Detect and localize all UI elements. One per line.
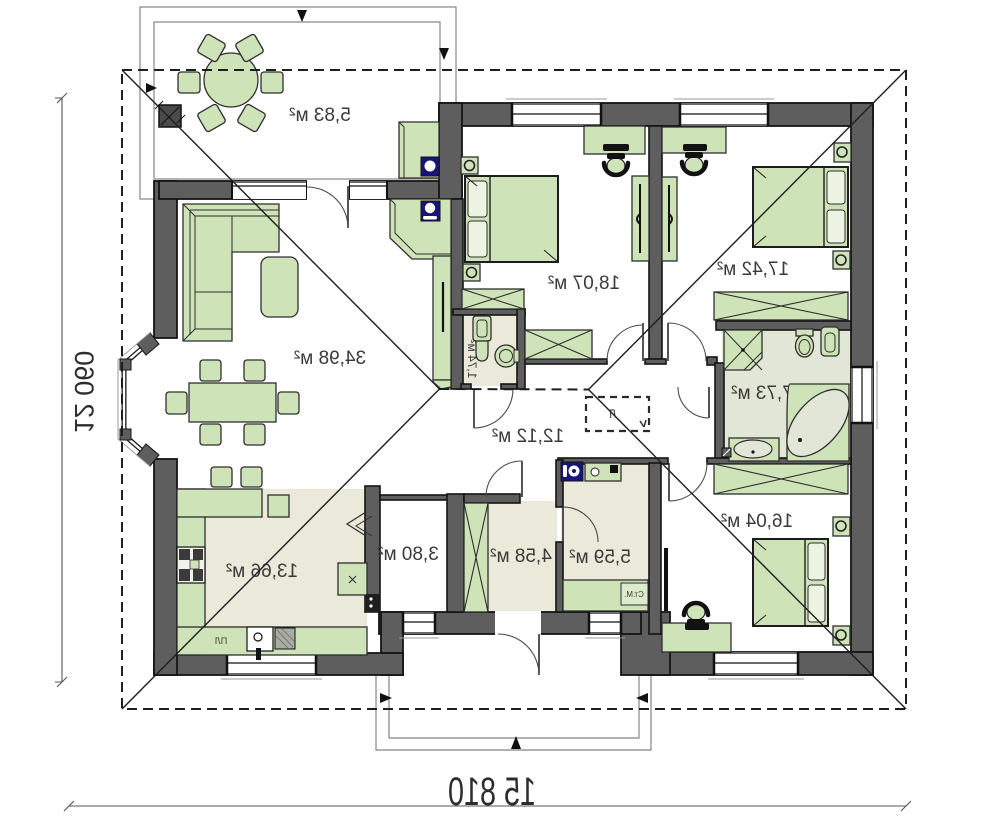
- svg-text:15 810: 15 810: [448, 769, 536, 814]
- svg-text:16,04 м²: 16,04 м²: [721, 511, 793, 532]
- svg-text:Ст.М.: Ст.М.: [624, 590, 644, 599]
- svg-text:12,12 м²: 12,12 м²: [492, 426, 564, 447]
- svg-text:3,80 м²: 3,80 м²: [377, 544, 439, 565]
- svg-text:5,59 м²: 5,59 м²: [569, 547, 631, 568]
- svg-text:7,73 м²: 7,73 м²: [731, 383, 793, 404]
- svg-text:34,98 м²: 34,98 м²: [294, 348, 366, 369]
- svg-text:4,58 м²: 4,58 м²: [490, 546, 552, 567]
- svg-text:5,83 м²: 5,83 м²: [289, 105, 351, 126]
- svg-text:ПЛ: ПЛ: [215, 636, 227, 646]
- svg-text:12 060: 12 060: [69, 351, 99, 434]
- svg-text:17,42 м²: 17,42 м²: [717, 259, 789, 280]
- svg-text:13,66 м²: 13,66 м²: [226, 561, 298, 582]
- svg-text:18,07 м²: 18,07 м²: [548, 273, 620, 294]
